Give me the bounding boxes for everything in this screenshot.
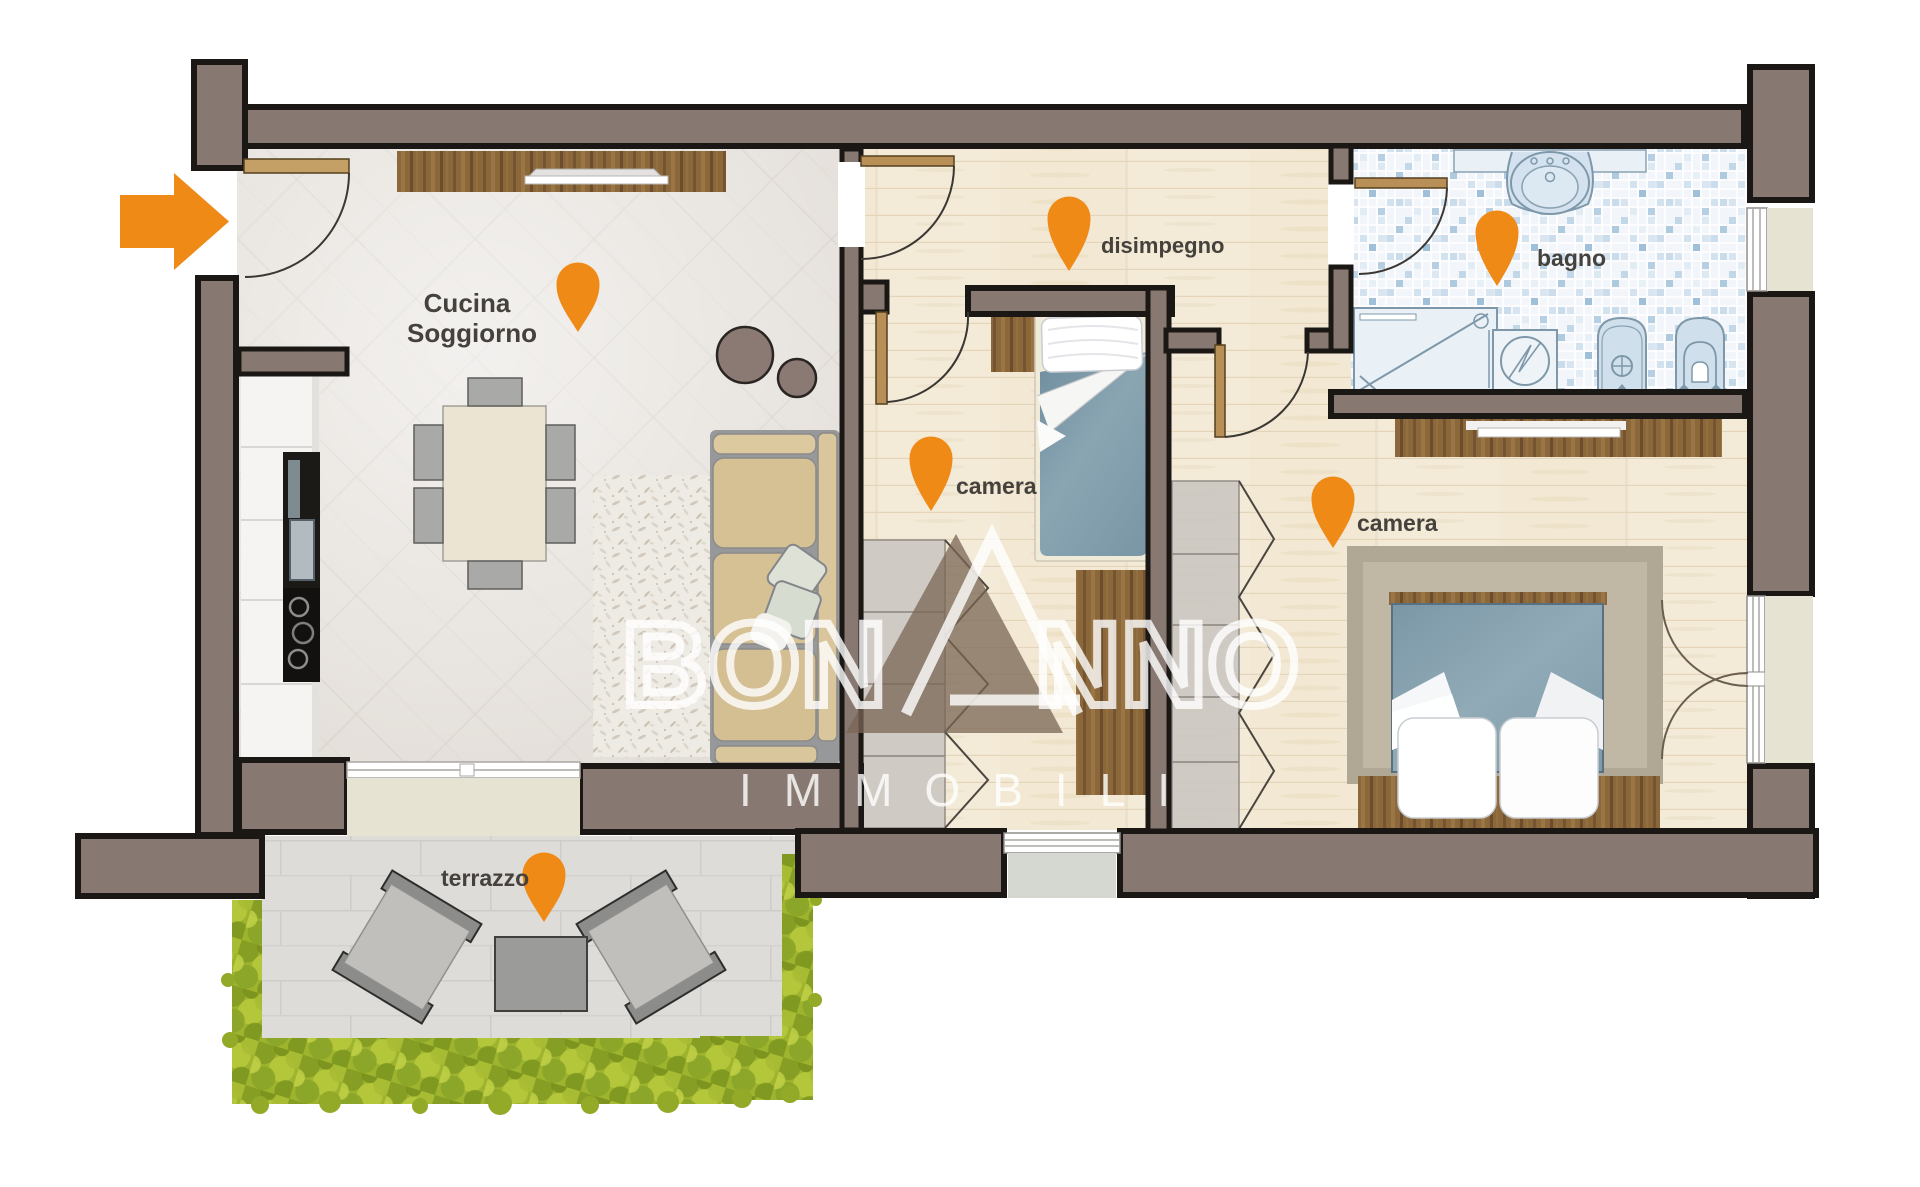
svg-text:BON: BON [622, 599, 887, 731]
svg-text:IMMOBILI: IMMOBILI [739, 764, 1202, 816]
svg-text:bagno: bagno [1537, 245, 1606, 271]
svg-text:NNO: NNO [1035, 599, 1300, 731]
svg-text:disimpegno: disimpegno [1101, 233, 1224, 258]
svg-text:Cucina: Cucina [424, 288, 511, 318]
svg-text:Soggiorno: Soggiorno [407, 318, 537, 348]
svg-text:camera: camera [956, 473, 1037, 499]
svg-text:camera: camera [1357, 510, 1438, 536]
svg-text:terrazzo: terrazzo [441, 865, 529, 891]
